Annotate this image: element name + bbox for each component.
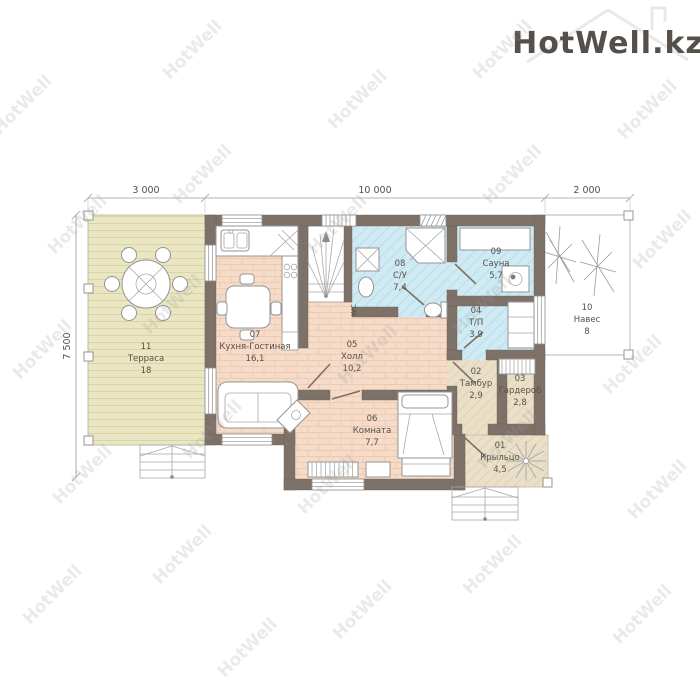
svg-text:03: 03 xyxy=(515,374,526,384)
nightstand-icon xyxy=(366,462,390,477)
sauna-heater-icon xyxy=(502,266,529,292)
tree-icon xyxy=(544,226,616,296)
svg-text:04: 04 xyxy=(471,306,482,316)
wardrobe-shelf-icon xyxy=(499,359,535,374)
washing-machine-icon xyxy=(356,248,379,271)
svg-text:02: 02 xyxy=(471,367,482,377)
svg-text:Т/П: Т/П xyxy=(468,318,483,328)
svg-text:Комната: Комната xyxy=(353,426,392,436)
label-tp: 04 Т/П 3,9 xyxy=(468,306,483,340)
svg-text:Терраса: Терраса xyxy=(127,354,164,364)
svg-text:10: 10 xyxy=(582,303,593,313)
svg-text:7,7: 7,7 xyxy=(365,438,379,448)
toilet-icon xyxy=(425,302,448,318)
svg-text:09: 09 xyxy=(491,247,502,257)
svg-text:7,4: 7,4 xyxy=(393,283,407,293)
floor-plan-page: HotWell.kz 3 000 10 000 2 000 7 500 xyxy=(0,0,700,677)
radiator-icon xyxy=(308,462,358,477)
dimension-label-7500: 7 500 xyxy=(62,332,73,359)
svg-text:4,5: 4,5 xyxy=(493,465,507,475)
terrace-floor xyxy=(88,215,205,445)
svg-text:Холл: Холл xyxy=(341,352,363,362)
svg-text:Кухня-Гостиная: Кухня-Гостиная xyxy=(219,342,290,352)
logo-text: HotWell.kz xyxy=(512,26,700,61)
label-canopy: 10 Навес 8 xyxy=(574,303,601,337)
terrace-steps-icon xyxy=(140,445,205,479)
svg-text:07: 07 xyxy=(250,330,261,340)
floor-plan: HotWell.kz 3 000 10 000 2 000 7 500 xyxy=(0,0,700,677)
dimension-label-3000: 3 000 xyxy=(132,185,159,196)
svg-text:10,2: 10,2 xyxy=(343,364,362,374)
svg-text:2,9: 2,9 xyxy=(469,391,483,401)
sink-icon xyxy=(359,277,374,297)
bed-icon xyxy=(398,392,452,476)
svg-text:18: 18 xyxy=(141,366,152,376)
svg-text:01: 01 xyxy=(495,441,506,451)
tp-closet xyxy=(508,302,534,348)
svg-text:3,9: 3,9 xyxy=(469,330,483,340)
svg-text:05: 05 xyxy=(347,340,358,350)
dimension-label-10000: 10 000 xyxy=(358,185,391,196)
svg-text:Сауна: Сауна xyxy=(483,259,510,269)
porch-steps-icon xyxy=(452,487,518,521)
svg-text:8: 8 xyxy=(584,327,589,337)
svg-text:16,1: 16,1 xyxy=(246,354,265,364)
svg-text:08: 08 xyxy=(395,259,406,269)
hotwell-logo: HotWell.kz xyxy=(512,8,700,62)
svg-text:Тамбур: Тамбур xyxy=(459,379,492,389)
svg-text:06: 06 xyxy=(367,414,378,424)
svg-text:Гардероб: Гардероб xyxy=(499,386,542,396)
svg-text:Навес: Навес xyxy=(574,315,601,325)
wc-label: WC xyxy=(350,304,358,316)
svg-text:5,7: 5,7 xyxy=(489,271,503,281)
dimension-label-2000: 2 000 xyxy=(573,185,600,196)
kitchen-sink-icon xyxy=(221,230,249,251)
svg-text:2,8: 2,8 xyxy=(513,398,527,408)
svg-text:Крыльцо: Крыльцо xyxy=(480,453,520,463)
svg-text:С/У: С/У xyxy=(393,271,408,281)
room-terrace xyxy=(84,211,205,445)
svg-text:11: 11 xyxy=(141,342,152,352)
